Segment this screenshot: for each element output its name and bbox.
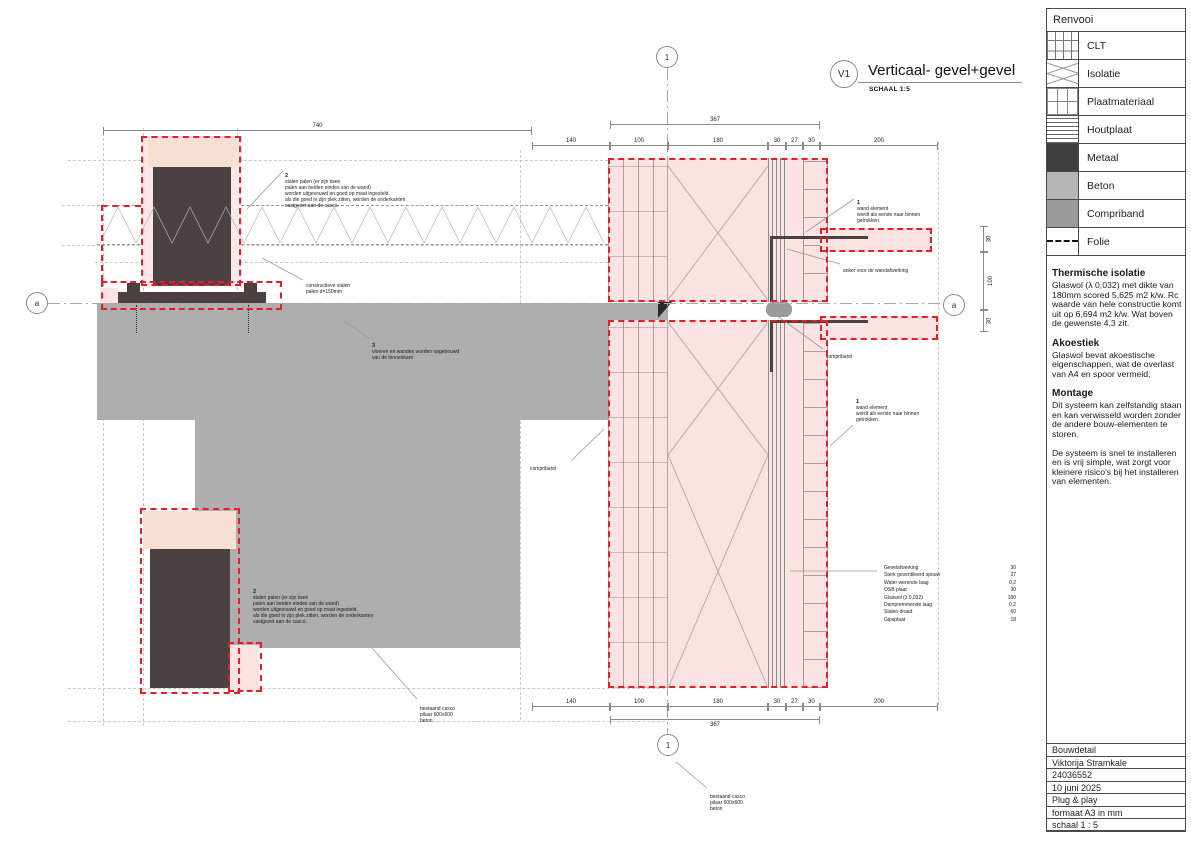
note-bestaand-casco-left: bestaand casco pilaar 600x600 beton: [420, 700, 490, 724]
column-base-plate: [118, 292, 266, 303]
titleblock-scale: schaal 1 : 5: [1046, 818, 1186, 831]
layer-row: Gipsplaat18: [884, 617, 1016, 624]
dim-bottom: 30: [803, 706, 820, 707]
note-compriband-right: compriband: [826, 348, 886, 360]
note-bestaand-casco-bottom: bestaand casco pilaar 600x600 beton: [710, 788, 780, 812]
anchor-band-upper: [820, 228, 932, 252]
note-steel-posts-bottom: 2stalen palen (er zijn twee palen aan be…: [253, 583, 428, 625]
layer-row: Gevelafwerking30: [884, 565, 1016, 572]
cladding-band-lower: [608, 320, 668, 688]
legend-title: Renvooi: [1047, 9, 1185, 32]
metaal-swatch: [1047, 144, 1079, 171]
anchor-dotted-line: [248, 305, 249, 333]
legend-row-houtplaat: Houtplaat: [1047, 116, 1185, 144]
panel-section: Thermische isolatie Glaswol (λ 0,032) me…: [1052, 268, 1182, 329]
dim-740: 740: [103, 130, 532, 131]
panel-heading: Akoestiek: [1052, 338, 1182, 349]
dim-right: 30: [983, 310, 984, 332]
view-title-underline: [858, 82, 1022, 83]
legend-row-clt: CLT: [1047, 32, 1185, 60]
section-marker-label: 1: [666, 741, 670, 750]
view-title: Verticaal- gevel+gevel: [868, 62, 1015, 79]
dim-top: 200: [820, 145, 938, 146]
dim-top: 30: [768, 145, 786, 146]
dim-bottom: 200: [820, 706, 938, 707]
legend-label: Houtplaat: [1079, 116, 1185, 143]
plaatmateriaal-swatch: [1047, 88, 1079, 115]
layer-row: Water werende laag0,2: [884, 580, 1016, 587]
note-wall-element-bottom: 1wand element wordt als eerste naar binn…: [856, 393, 946, 423]
dim-top: 30: [803, 145, 820, 146]
dim-bottom: 140: [532, 706, 610, 707]
note-compriband-left: compriband: [530, 460, 590, 472]
titleblock-date: 10 juni 2025: [1046, 781, 1186, 794]
isolatie-swatch: [1047, 60, 1079, 87]
dim-top: 180: [668, 145, 768, 146]
note-anker: anker voor de wandafwerking: [843, 262, 943, 274]
notes-panel: Thermische isolatie Glaswol (λ 0,032) me…: [1052, 268, 1182, 496]
view-scale: SCHAAL 1:5: [869, 86, 910, 93]
bouwdetail-drawing: 1 1 a a V1 Verticaal- gevel+gevel SCHAAL…: [0, 0, 1191, 842]
note-floors: 3vloeren en wanden worden opgebouwd van …: [372, 337, 492, 361]
stud-band-lower: [803, 320, 828, 688]
titleblock-number: 24036552: [1046, 768, 1186, 781]
note-constructieve: constructieve stalen palen d=150mm: [306, 277, 386, 295]
section-marker-top: 1: [656, 46, 678, 68]
outline-segment: [101, 205, 141, 207]
panel-section: Akoestiek Glaswol bevat akoestische eige…: [1052, 338, 1182, 380]
membrane-band-lower: [768, 320, 788, 688]
legend-label: Plaatmateriaal: [1079, 88, 1185, 115]
legend-label: CLT: [1079, 32, 1185, 59]
beton-swatch: [1047, 172, 1079, 199]
steel-column-bottom: [150, 549, 230, 688]
section-marker-label: 1: [665, 53, 669, 62]
guide-line: [68, 688, 665, 689]
note-wall-element-top: 1wand element wordt als eerste naar binn…: [857, 194, 947, 224]
panel-body: Glaswol bevat akoestische eigenschappen,…: [1052, 351, 1182, 380]
legend-row-metaal: Metaal: [1047, 144, 1185, 172]
panel-body: Dit systeem kan zelfstandig staan en kan…: [1052, 401, 1182, 487]
titleblock-author: Viktorija Stramkale: [1046, 756, 1186, 769]
wall-layer-table: Gevelafwerking30 Sterk geventileerd spou…: [884, 565, 1016, 624]
dim-bottom: 100: [610, 706, 668, 707]
legend-label: Metaal: [1079, 144, 1185, 171]
legend-row-folie: Folie: [1047, 228, 1185, 256]
layer-row: Dampremmende laag0,2: [884, 602, 1016, 609]
dim-bottom: 30: [768, 706, 786, 707]
dim-bottom: 180: [668, 706, 768, 707]
column-bottom-cap: [143, 511, 236, 549]
panel-body: Glaswol (λ 0,032) met dikte van 180mm sc…: [1052, 281, 1182, 329]
legend-label: Compriband: [1079, 200, 1185, 227]
layer-row: Sterk geventileerd spouw27: [884, 572, 1016, 579]
column-bottom-patch: [230, 645, 259, 691]
layer-row: Glaswol (λ 0,032)180: [884, 595, 1016, 602]
axis-marker-label: a: [35, 299, 39, 308]
panel-heading: Montage: [1052, 388, 1182, 399]
note-steel-posts-top: 2stalen palen (er zijn twee palen aan be…: [285, 167, 430, 209]
dim-367-bottom: 367: [610, 719, 820, 720]
compriband-wedge: [658, 302, 672, 318]
legend-label: Isolatie: [1079, 60, 1185, 87]
titleblock-system: Plug & play: [1046, 793, 1186, 806]
anchor-bar-lower: [770, 320, 868, 323]
panel-heading: Thermische isolatie: [1052, 268, 1182, 279]
guide-line: [68, 721, 665, 722]
houtplaat-swatch: [1047, 116, 1079, 143]
legend-label: Beton: [1079, 172, 1185, 199]
dim-bottom: 27: [786, 706, 803, 707]
titleblock-format: formaat A3 in mm: [1046, 806, 1186, 819]
column-foot-left: [127, 283, 140, 292]
legend-row-beton: Beton: [1047, 172, 1185, 200]
compriband-swatch: [1047, 200, 1079, 227]
dim-right: 100: [983, 252, 984, 310]
section-marker-bottom: 1: [657, 734, 679, 756]
outline-segment: [101, 205, 103, 281]
axis-marker-label: a: [952, 301, 956, 310]
layer-row: Stalen draad60: [884, 609, 1016, 616]
base-pink-patch: [100, 288, 118, 303]
folie-swatch: [1047, 228, 1079, 255]
axis-centerline: [48, 303, 944, 304]
legend-label: Folie: [1079, 228, 1185, 255]
axis-marker-right: a: [943, 294, 965, 316]
dim-top: 100: [610, 145, 668, 146]
dim-right: 30: [983, 226, 984, 252]
dim-top: 27: [786, 145, 803, 146]
section-centerline: [667, 68, 668, 734]
anchor-dotted-line: [136, 305, 137, 333]
compriband-block: [766, 302, 792, 317]
legend-row-compriband: Compriband: [1047, 200, 1185, 228]
dim-top: 140: [532, 145, 610, 146]
titleblock-project: Bouwdetail: [1046, 743, 1186, 756]
concrete-slab-upper: [97, 303, 668, 420]
anchor-bar-upper: [770, 236, 868, 239]
panel-section: Montage Dit systeem kan zelfstandig staa…: [1052, 388, 1182, 487]
anchor-leg-upper: [770, 236, 773, 302]
view-tag-circle: V1: [830, 60, 858, 88]
axis-marker-left: a: [26, 292, 48, 314]
anchor-leg-lower: [770, 320, 773, 372]
steel-column-top: [153, 167, 231, 286]
legend-row-plaatmateriaal: Plaatmateriaal: [1047, 88, 1185, 116]
column-foot-right: [244, 283, 257, 292]
legend-row-isolatie: Isolatie: [1047, 60, 1185, 88]
column-top-cap: [148, 136, 240, 167]
dim-367-top: 367: [610, 124, 820, 125]
clt-swatch: [1047, 32, 1079, 59]
view-tag: V1: [838, 69, 850, 80]
layer-row: OSB plaat30: [884, 587, 1016, 594]
cladding-band-upper: [608, 158, 668, 302]
